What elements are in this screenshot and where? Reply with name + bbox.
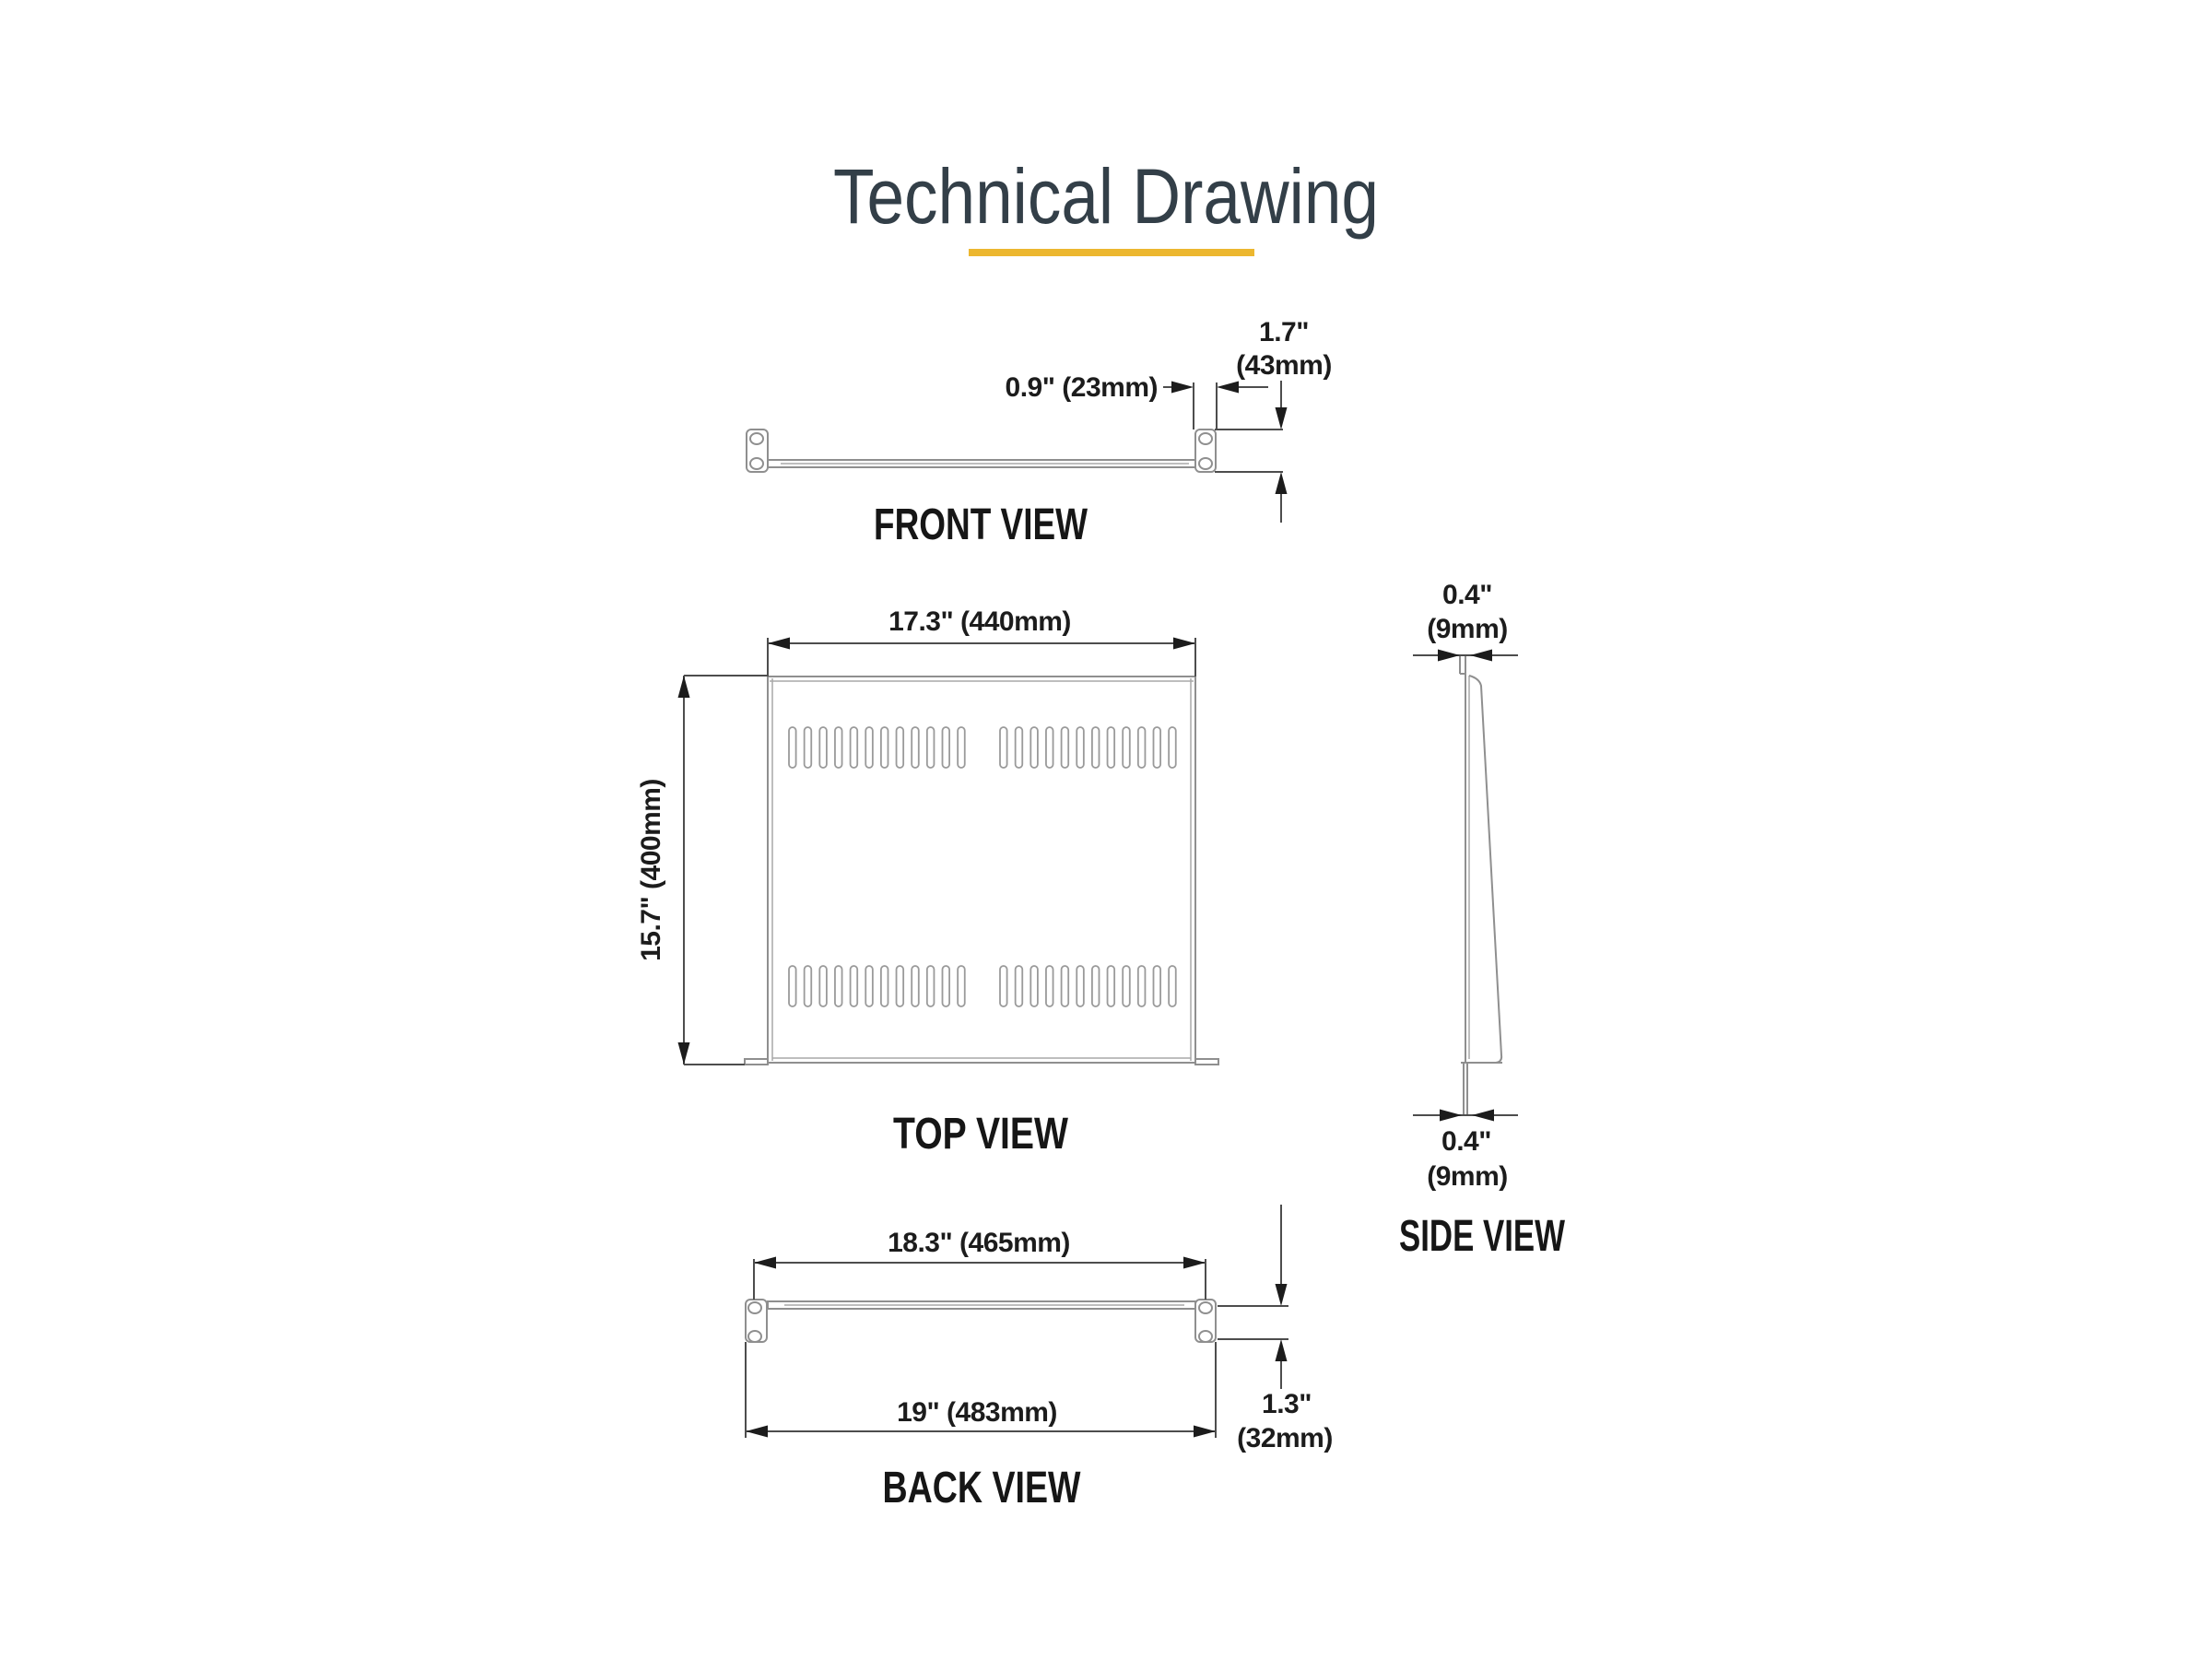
- vent-slot: [927, 966, 935, 1006]
- back-view-dim-flange: 1.3" (32mm): [1218, 1205, 1333, 1453]
- vent-slot: [865, 727, 873, 768]
- top-view-dim-depth: 15.7" (400mm): [636, 676, 768, 1065]
- dim-label-top-in: 0.4": [1442, 580, 1492, 610]
- vent-slot: [1138, 727, 1146, 768]
- side-shelf-slant: [1469, 676, 1501, 1063]
- front-view: 0.9" (23mm) 1.7" (43mm) FRONT VIEW: [747, 317, 1332, 549]
- vent-slot: [1169, 727, 1176, 768]
- vent-slot: [805, 727, 812, 768]
- vent-slot: [958, 727, 965, 768]
- dim-label-height-mm: (43mm): [1236, 350, 1332, 381]
- vent-slot: [1016, 727, 1023, 768]
- dim-label-flange-mm: (32mm): [1237, 1423, 1333, 1453]
- arrow-up-icon: [1276, 472, 1288, 494]
- back-view-dim-inner-width: 18.3" (465mm): [754, 1228, 1206, 1300]
- vent-slot: [1016, 966, 1023, 1006]
- vent-slot: [1030, 966, 1038, 1006]
- vent-slot: [943, 966, 950, 1006]
- arrow-left-icon: [768, 638, 790, 650]
- back-view-dim-outer-width: 19" (483mm): [746, 1342, 1216, 1438]
- top-view-label: TOP VIEW: [893, 1110, 1069, 1159]
- vent-slot: [789, 727, 796, 768]
- dim-label-width: 17.3" (440mm): [888, 606, 1071, 637]
- back-view: 18.3" (465mm) 19" (483mm) 1.3" (32mm): [746, 1205, 1333, 1512]
- vent-slot: [789, 966, 796, 1006]
- dim-label-bottom-in: 0.4": [1441, 1126, 1491, 1157]
- page-header: Technical Drawing: [833, 153, 1379, 256]
- title-accent-underline: [969, 249, 1254, 256]
- top-shelf-plate: [768, 677, 1195, 1063]
- arrow-right-icon: [1194, 1426, 1216, 1438]
- vent-slot: [1077, 727, 1084, 768]
- vent-slot: [1123, 966, 1130, 1006]
- front-view-label: FRONT VIEW: [874, 500, 1088, 549]
- side-view-label: SIDE VIEW: [1399, 1212, 1565, 1261]
- vent-slot: [819, 727, 827, 768]
- dim-label-top-mm: (9mm): [1427, 614, 1508, 644]
- arrow-up-icon: [1276, 1339, 1288, 1361]
- dim-label-depth: 15.7" (400mm): [636, 779, 666, 961]
- arrow-left-icon: [754, 1257, 776, 1269]
- dim-label-height-in: 1.7": [1259, 317, 1309, 347]
- arrow-right-icon: [1438, 650, 1460, 662]
- vent-slot: [1046, 727, 1053, 768]
- vent-slot: [912, 727, 919, 768]
- side-view-dim-bottom: 0.4" (9mm): [1413, 1110, 1518, 1193]
- page-title: Technical Drawing: [833, 153, 1379, 240]
- vent-slot: [1108, 727, 1115, 768]
- vent-slot: [865, 966, 873, 1006]
- vent-slot: [1154, 966, 1161, 1006]
- arrow-right-icon: [1173, 638, 1195, 650]
- arrow-left-icon: [1217, 382, 1239, 394]
- top-view: 17.3" (440mm) 15.7" (400mm) TOP VIEW: [636, 606, 1218, 1159]
- front-view-shelf-drawing: [747, 429, 1216, 472]
- arrow-down-icon: [1276, 407, 1288, 429]
- top-view-shelf-drawing: [745, 677, 1218, 1065]
- vent-slot: [835, 966, 842, 1006]
- vent-slot: [805, 966, 812, 1006]
- arrow-right-icon: [1440, 1110, 1462, 1122]
- vent-slot: [819, 966, 827, 1006]
- vent-slot: [1138, 966, 1146, 1006]
- arrow-right-icon: [1183, 1257, 1206, 1269]
- vent-slot: [897, 727, 904, 768]
- vent-slot: [1062, 966, 1069, 1006]
- dim-label-bottom-mm: (9mm): [1427, 1161, 1508, 1192]
- arrow-left-icon: [746, 1426, 768, 1438]
- vent-slot: [1062, 727, 1069, 768]
- vent-slot: [1154, 727, 1161, 768]
- arrow-left-icon: [1472, 1110, 1494, 1122]
- technical-drawing-canvas: Technical Drawing 0.9" (23mm) 1.7" (43mm…: [0, 0, 2212, 1659]
- front-view-dim-ear-height: 1.7" (43mm): [1215, 317, 1332, 523]
- arrow-right-icon: [1171, 382, 1194, 394]
- vent-slot: [912, 966, 919, 1006]
- vent-slot: [835, 727, 842, 768]
- arrow-left-icon: [1470, 650, 1492, 662]
- dim-label-inner-width: 18.3" (465mm): [888, 1228, 1070, 1258]
- front-view-dim-ear-width: 0.9" (23mm): [1006, 372, 1268, 429]
- vent-slot: [1077, 966, 1084, 1006]
- arrow-down-icon: [678, 1042, 690, 1065]
- vent-slot: [881, 966, 888, 1006]
- dim-label-flange-in: 1.3": [1262, 1389, 1312, 1419]
- vent-slot: [881, 727, 888, 768]
- back-view-shelf-drawing: [746, 1300, 1216, 1342]
- vent-slot: [851, 966, 858, 1006]
- vent-slot: [1108, 966, 1115, 1006]
- vent-slot: [943, 727, 950, 768]
- top-view-dim-width: 17.3" (440mm): [768, 606, 1195, 677]
- side-view: 0.4" (9mm) 0.4" (9mm) SIDE VIEW: [1399, 580, 1565, 1261]
- top-right-ear-tab: [1195, 1059, 1218, 1065]
- side-view-shelf-drawing: [1460, 655, 1502, 1114]
- vent-slot: [1123, 727, 1130, 768]
- vent-slot: [1000, 966, 1007, 1006]
- side-view-dim-top: 0.4" (9mm): [1413, 580, 1518, 662]
- vent-slot: [1030, 727, 1038, 768]
- vent-slot: [897, 966, 904, 1006]
- back-view-label: BACK VIEW: [883, 1464, 1082, 1512]
- arrow-up-icon: [678, 676, 690, 698]
- vent-slot: [1000, 727, 1007, 768]
- dim-label-ear-width: 0.9" (23mm): [1006, 372, 1158, 403]
- vent-slot: [1046, 966, 1053, 1006]
- arrow-down-icon: [1276, 1284, 1288, 1306]
- vent-slot: [958, 966, 965, 1006]
- dim-label-outer-width: 19" (483mm): [897, 1397, 1057, 1428]
- front-right-mounting-ear: [1195, 429, 1216, 472]
- vent-slot: [1092, 727, 1100, 768]
- vent-slot: [927, 727, 935, 768]
- vent-slot: [851, 727, 858, 768]
- vent-slot: [1169, 966, 1176, 1006]
- top-left-ear-tab: [745, 1059, 768, 1065]
- vent-slot: [1092, 966, 1100, 1006]
